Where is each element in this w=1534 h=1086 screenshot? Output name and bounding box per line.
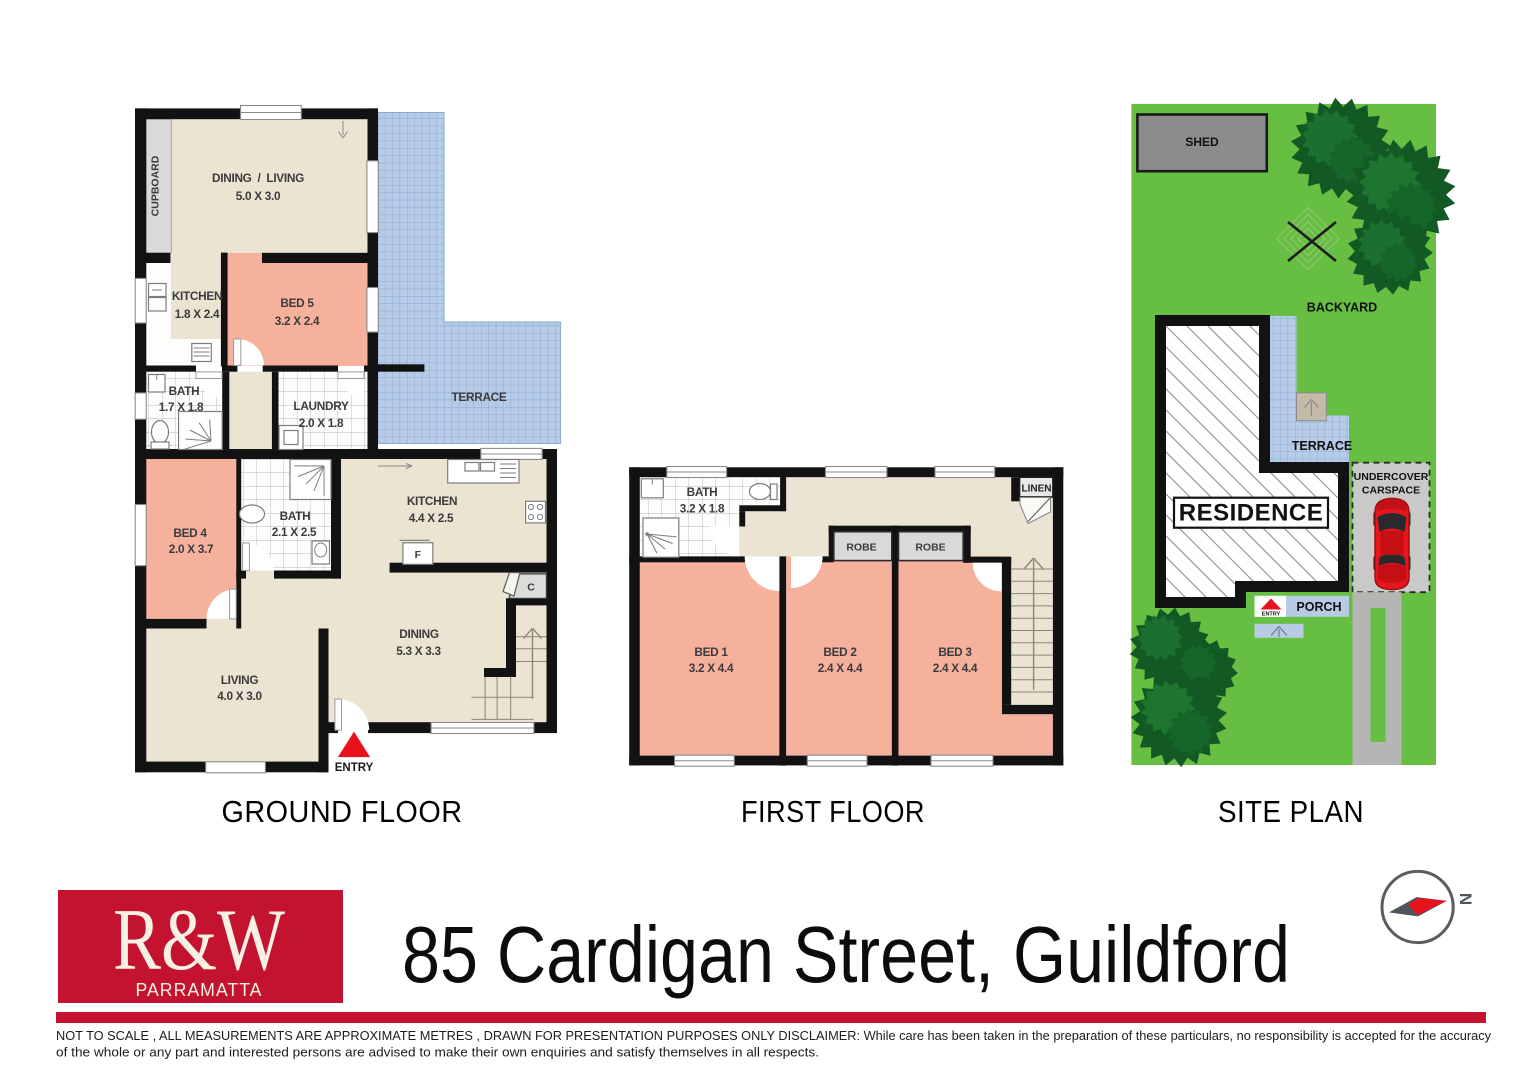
svg-text:ENTRY: ENTRY <box>1262 612 1281 618</box>
svg-text:ROBE: ROBE <box>915 542 945 554</box>
svg-text:LAUNDRY: LAUNDRY <box>293 399 349 413</box>
svg-text:TERRACE: TERRACE <box>452 390 507 404</box>
svg-text:KITCHEN: KITCHEN <box>407 494 457 508</box>
svg-text:DINING / LIVING: DINING / LIVING <box>212 171 304 185</box>
svg-text:KITCHEN: KITCHEN <box>172 289 222 303</box>
svg-text:2.4 X 4.4: 2.4 X 4.4 <box>933 661 978 675</box>
svg-text:4.0 X 3.0: 4.0 X 3.0 <box>217 689 262 703</box>
svg-text:SITE PLAN: SITE PLAN <box>1218 794 1364 829</box>
svg-text:CUPBOARD: CUPBOARD <box>150 155 162 216</box>
svg-text:2.0 X 3.7: 2.0 X 3.7 <box>169 542 214 556</box>
svg-text:85 Cardigan Street, Guildford: 85 Cardigan Street, Guildford <box>402 910 1290 999</box>
svg-text:5.0 X 3.0: 5.0 X 3.0 <box>236 189 281 203</box>
svg-text:CARSPACE: CARSPACE <box>1362 485 1420 497</box>
svg-text:LIVING: LIVING <box>221 673 259 687</box>
svg-text:BED 2: BED 2 <box>823 645 857 659</box>
svg-text:R&W: R&W <box>113 892 285 989</box>
svg-text:RESIDENCE: RESIDENCE <box>1179 500 1324 527</box>
svg-text:BED 3: BED 3 <box>938 645 972 659</box>
svg-text:1.8 X 2.4: 1.8 X 2.4 <box>175 307 220 321</box>
svg-text:NOT TO SCALE , ALL MEASUREMENT: NOT TO SCALE , ALL MEASUREMENTS ARE APPR… <box>56 1028 1491 1043</box>
svg-text:BED 1: BED 1 <box>694 645 728 659</box>
svg-text:BATH: BATH <box>687 485 718 499</box>
svg-text:LINEN: LINEN <box>1022 483 1052 494</box>
svg-text:1.7 X 1.8: 1.7 X 1.8 <box>159 400 204 414</box>
svg-text:N: N <box>1456 893 1475 905</box>
svg-text:of the whole or any part and i: of the whole or any part and interested … <box>56 1045 819 1060</box>
svg-text:GROUND FLOOR: GROUND FLOOR <box>222 794 463 829</box>
svg-text:SHED: SHED <box>1185 135 1219 149</box>
svg-text:F: F <box>415 549 422 561</box>
svg-text:TERRACE: TERRACE <box>1292 439 1352 453</box>
svg-text:2.0 X 1.8: 2.0 X 1.8 <box>299 416 344 430</box>
svg-text:ROBE: ROBE <box>846 542 876 554</box>
svg-text:UNDERCOVER: UNDERCOVER <box>1354 471 1429 483</box>
svg-text:BATH: BATH <box>169 384 200 398</box>
svg-text:C: C <box>527 582 535 594</box>
svg-text:2.1 X 2.5: 2.1 X 2.5 <box>272 525 317 539</box>
svg-text:BED 5: BED 5 <box>280 296 314 310</box>
svg-text:2.4 X 4.4: 2.4 X 4.4 <box>818 661 863 675</box>
svg-text:FIRST FLOOR: FIRST FLOOR <box>741 794 925 829</box>
svg-text:BATH: BATH <box>280 509 311 523</box>
svg-text:3.2 X 2.4: 3.2 X 2.4 <box>275 314 320 328</box>
svg-text:PARRAMATTA: PARRAMATTA <box>136 980 263 1000</box>
svg-text:BED 4: BED 4 <box>173 526 207 540</box>
svg-text:ENTRY: ENTRY <box>335 762 374 774</box>
svg-text:3.2 X 1.8: 3.2 X 1.8 <box>680 502 725 516</box>
svg-text:3.2 X 4.4: 3.2 X 4.4 <box>689 661 734 675</box>
svg-text:PORCH: PORCH <box>1296 600 1341 614</box>
svg-text:BACKYARD: BACKYARD <box>1307 301 1377 315</box>
svg-text:DINING: DINING <box>399 627 439 641</box>
svg-text:4.4 X 2.5: 4.4 X 2.5 <box>409 511 454 525</box>
svg-text:5.3 X 3.3: 5.3 X 3.3 <box>396 644 441 658</box>
